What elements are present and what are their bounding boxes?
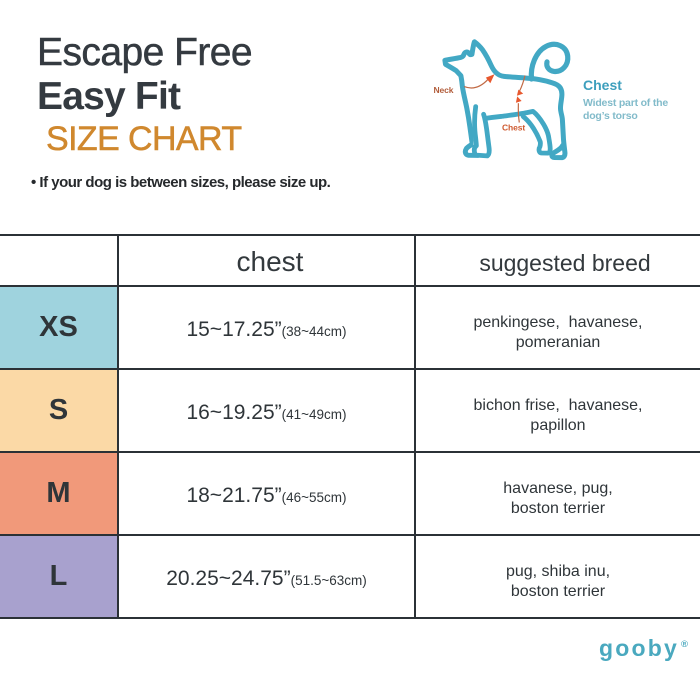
svg-text:Chest: Chest	[502, 123, 525, 133]
svg-text:Neck: Neck	[434, 85, 454, 95]
